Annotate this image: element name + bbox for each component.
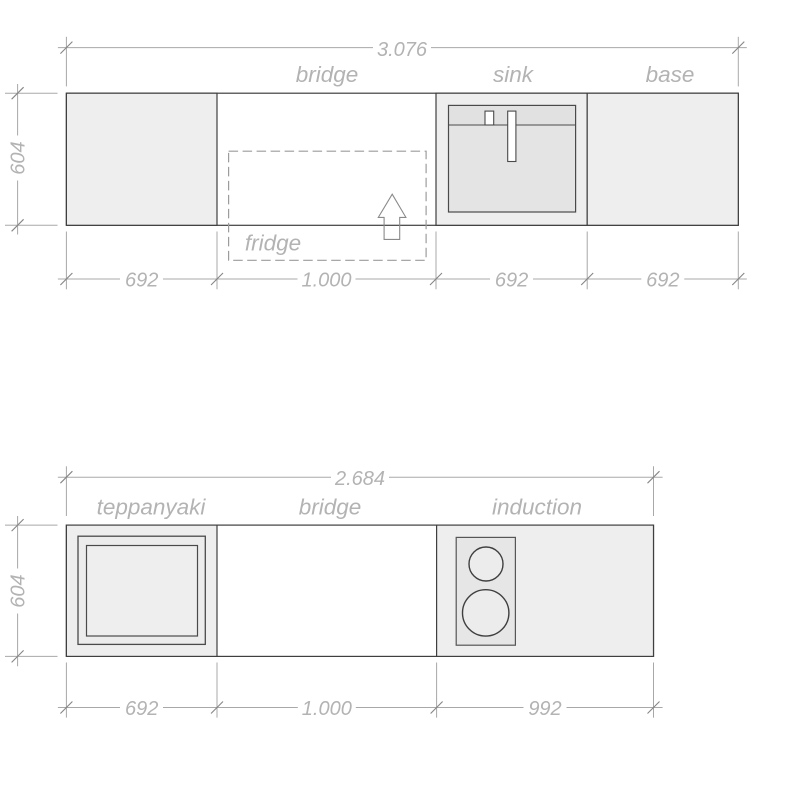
svg-text:604: 604 (7, 574, 29, 607)
svg-text:fridge: fridge (245, 230, 301, 255)
svg-text:base: base (646, 62, 695, 87)
svg-text:692: 692 (646, 270, 679, 292)
svg-text:bridge: bridge (299, 495, 362, 520)
svg-text:3.076: 3.076 (377, 39, 428, 61)
svg-text:bridge: bridge (296, 62, 359, 87)
svg-text:692: 692 (125, 270, 158, 292)
svg-text:692: 692 (495, 270, 528, 292)
svg-text:induction: induction (492, 495, 582, 520)
svg-text:1.000: 1.000 (302, 698, 352, 720)
svg-text:992: 992 (528, 698, 561, 720)
svg-text:604: 604 (7, 141, 29, 174)
svg-text:1.000: 1.000 (301, 270, 351, 292)
svg-text:692: 692 (125, 698, 158, 720)
svg-text:sink: sink (493, 62, 535, 87)
svg-text:teppanyaki: teppanyaki (97, 495, 207, 520)
svg-text:2.684: 2.684 (334, 468, 385, 490)
